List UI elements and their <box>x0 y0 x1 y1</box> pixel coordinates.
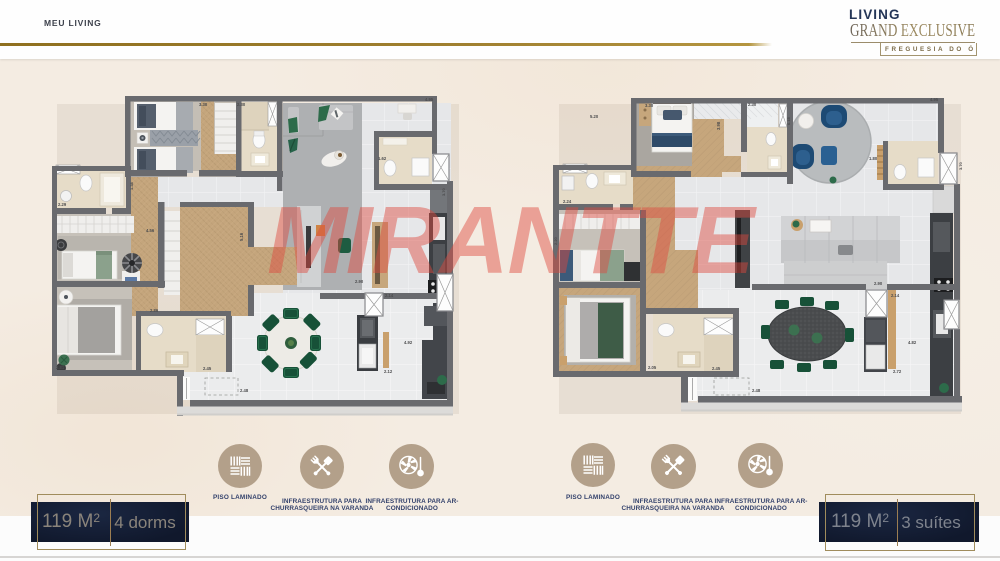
svg-text:2.90: 2.90 <box>874 281 883 286</box>
svg-text:2.48: 2.48 <box>240 388 249 393</box>
svg-text:2.30: 2.30 <box>237 102 246 107</box>
svg-text:2.29: 2.29 <box>58 202 67 207</box>
svg-text:3.70: 3.70 <box>958 161 963 170</box>
svg-text:2.05: 2.05 <box>648 365 657 370</box>
svg-text:4.56: 4.56 <box>146 228 155 233</box>
svg-text:2.14: 2.14 <box>891 293 900 298</box>
svg-text:2.45: 2.45 <box>203 366 212 371</box>
svg-text:3.30: 3.30 <box>645 103 654 108</box>
svg-text:1.62: 1.62 <box>378 156 387 161</box>
svg-text:2.81: 2.81 <box>56 365 65 370</box>
svg-text:4.92: 4.92 <box>404 340 413 345</box>
svg-text:4.95: 4.95 <box>930 97 939 102</box>
svg-text:2.12: 2.12 <box>384 369 393 374</box>
svg-text:2.45: 2.45 <box>712 366 721 371</box>
svg-text:2.48: 2.48 <box>752 388 761 393</box>
svg-text:3.98: 3.98 <box>716 121 721 130</box>
svg-text:2.72: 2.72 <box>893 369 902 374</box>
svg-text:5.16: 5.16 <box>239 232 244 241</box>
svg-text:1.80: 1.80 <box>869 156 878 161</box>
svg-text:4.82: 4.82 <box>908 340 917 345</box>
svg-text:6.15: 6.15 <box>786 116 791 125</box>
svg-text:4.95: 4.95 <box>425 97 434 102</box>
svg-text:2.30: 2.30 <box>748 102 757 107</box>
svg-text:2.86: 2.86 <box>150 308 159 313</box>
svg-text:3.30: 3.30 <box>199 102 208 107</box>
svg-text:1.38: 1.38 <box>129 181 134 190</box>
svg-text:5.20: 5.20 <box>590 114 599 119</box>
